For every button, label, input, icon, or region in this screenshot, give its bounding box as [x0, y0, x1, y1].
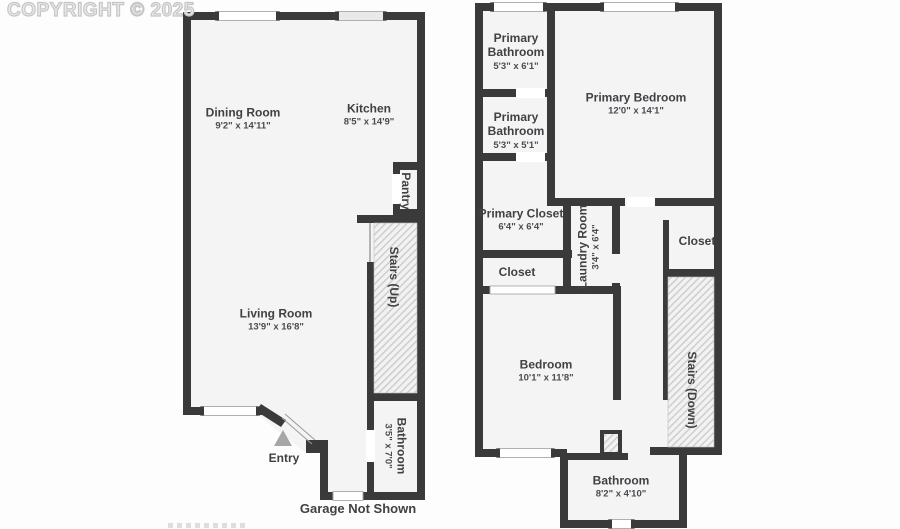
room-label-primary-bedroom: Primary Bedroom 12'0" x 14'1": [586, 91, 687, 118]
room-dims: 13'9" x 16'8": [240, 322, 313, 333]
room-label-primary-bathroom-upper: Primary Bathroom 5'3" x 6'1": [488, 32, 545, 72]
room-name: Living Room: [240, 307, 313, 321]
copyright-watermark: COPYRIGHT © 2025: [7, 0, 195, 22]
note-text: Garage Not Shown: [300, 501, 416, 517]
bedroom-closet-door-opening: [490, 286, 555, 294]
room-name: Dining Room: [206, 106, 281, 120]
room-name: Bathroom: [394, 418, 408, 475]
room-name: Primary: [488, 32, 545, 46]
room-label-closet-inner: Closet: [499, 265, 536, 279]
room-dims: 9'2" x 14'11": [206, 121, 281, 132]
room-label-living-room: Living Room 13'9" x 16'8": [240, 307, 313, 334]
room-name: Bathroom: [488, 125, 545, 139]
window: [496, 449, 555, 458]
room-label-primary-bathroom-lower: Primary Bathroom 5'3" x 5'1": [488, 111, 545, 151]
room-name: Bathroom: [593, 474, 650, 488]
room-dims: 6'4" x 6'4": [479, 222, 564, 233]
floorplan-drawing: [0, 0, 900, 529]
room-name: Closet: [499, 265, 536, 279]
room-name: Entry: [269, 451, 300, 465]
room-name: Laundry Room: [576, 205, 590, 290]
garage-note-label: Garage Not Shown: [300, 501, 416, 517]
room-label-stairs-up: Stairs (Up): [387, 247, 401, 308]
room-dims: 5'3" x 6'1": [488, 61, 545, 72]
room-name: Pantry: [399, 172, 413, 209]
room-dims: 10'1" x 11'8": [518, 373, 573, 384]
room-label-entry: Entry: [269, 451, 300, 465]
bathroom-door-opening: [366, 430, 375, 462]
room-dims: 5'3" x 5'1": [488, 140, 545, 151]
room-label-laundry-room: Laundry Room 3'4" x 6'4": [576, 205, 603, 290]
room-dims: 8'2" x 4'10": [593, 489, 650, 500]
window: [200, 407, 260, 416]
room-label-closet-right: Closet: [679, 234, 716, 248]
floorplan-canvas: COPYRIGHT © 2025 Dining Room 9'2" x 14'1…: [0, 0, 900, 529]
room-label-primary-closet: Primary Closet 6'4" x 6'4": [479, 207, 564, 234]
window: [608, 520, 635, 529]
primary-bedroom-door-opening: [627, 197, 655, 207]
room-name: Closet: [679, 234, 716, 248]
room-name: Primary Closet: [479, 207, 564, 221]
room-label-bathroom-floor1: Bathroom 3'5" x 7'0": [382, 418, 409, 475]
room-label-kitchen: Kitchen 8'5" x 14'9": [344, 102, 395, 129]
room-dims: 12'0" x 14'1": [586, 106, 687, 117]
room-label-bedroom: Bedroom 10'1" x 11'8": [518, 358, 573, 385]
room-label-dining-room: Dining Room 9'2" x 14'11": [206, 106, 281, 133]
room-dims: 3'5" x 7'0": [382, 418, 393, 475]
window: [335, 12, 387, 21]
room-name: Stairs (Down): [685, 351, 699, 428]
garage-opening: [333, 492, 363, 501]
room-name: Kitchen: [344, 102, 395, 116]
room-name: Primary Bedroom: [586, 91, 687, 105]
room-name: Stairs (Up): [387, 247, 401, 308]
room-label-bathroom-floor2: Bathroom 8'2" x 4'10": [593, 474, 650, 501]
primary-bathroom-upper-door-opening: [516, 88, 545, 98]
room-dims: 3'4" x 6'4": [591, 205, 602, 290]
room-name: Bathroom: [488, 46, 545, 60]
room-name: Bedroom: [518, 358, 573, 372]
room-dims: 8'5" x 14'9": [344, 117, 395, 128]
primary-bathroom-lower-door-opening: [516, 152, 545, 162]
room-name: Primary: [488, 111, 545, 125]
window: [600, 3, 679, 12]
window: [490, 3, 547, 12]
room-label-stairs-down: Stairs (Down): [685, 351, 699, 428]
window: [215, 12, 280, 21]
room-label-pantry: Pantry: [399, 172, 413, 209]
chase-box: [600, 430, 622, 456]
fine-print-illegible: [168, 523, 246, 528]
